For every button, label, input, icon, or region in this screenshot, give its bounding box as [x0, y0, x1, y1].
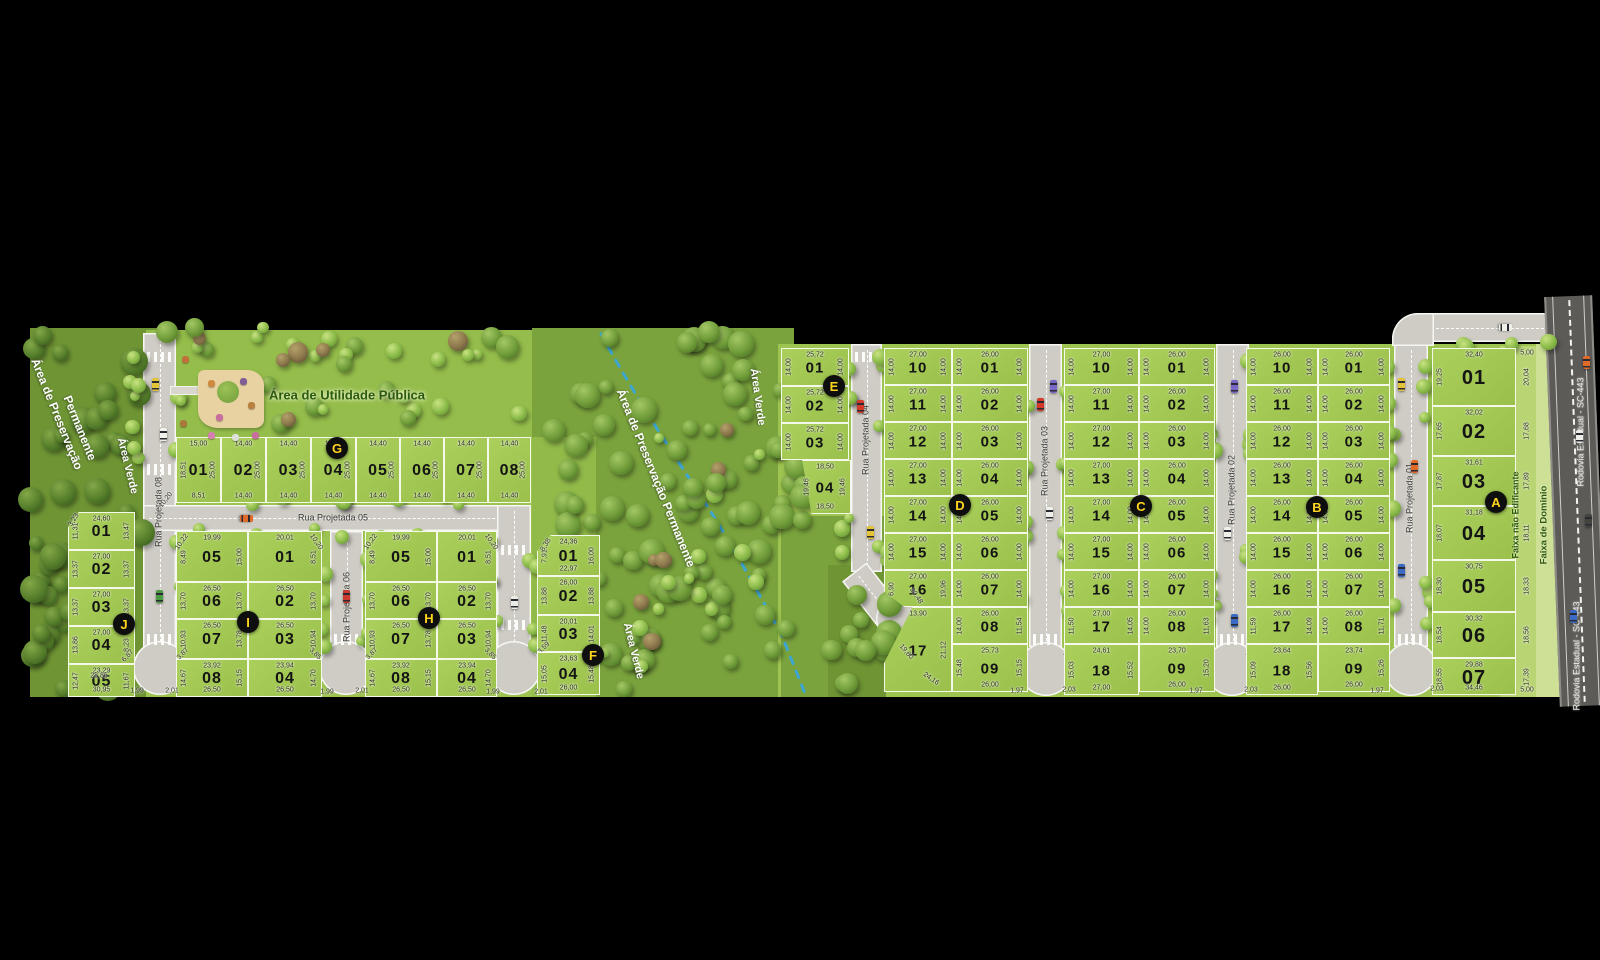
- lot-dimension: 11,67: [124, 672, 131, 689]
- lot-dimension: 14,00: [838, 433, 845, 451]
- tree: [131, 378, 146, 393]
- lot-dimension: 26,00: [560, 580, 578, 587]
- lot-dimension: 15,56: [1307, 661, 1314, 679]
- lot-dimension: 17,87: [1437, 472, 1444, 490]
- lot-dimension: 1,99: [486, 689, 500, 696]
- lot-dimension: 15,48: [957, 659, 964, 677]
- tree: [706, 473, 726, 493]
- lot-dimension: 19,46: [804, 478, 811, 496]
- lot-dimension: 2,03: [1062, 687, 1076, 694]
- car: [1583, 356, 1590, 369]
- lot-dimension: 14,00: [1204, 395, 1211, 413]
- lot-dimension: 26,50: [276, 623, 294, 630]
- tree: [575, 383, 599, 407]
- lot-dimension: 11,50: [1069, 617, 1076, 634]
- lot-dimension: 14,00: [1069, 580, 1076, 598]
- crosswalk: [1398, 634, 1424, 645]
- block-badge-A: A: [1485, 491, 1507, 513]
- lot-dimension: 14,00: [957, 432, 964, 450]
- lot-dimension: 15,00: [237, 548, 244, 566]
- lot-dimension: 26,00: [1168, 537, 1186, 544]
- lot-dimension: 27,00: [909, 352, 927, 359]
- lot-dimension: 14,00: [1069, 395, 1076, 413]
- lot-number-B-17: 17: [1273, 619, 1292, 634]
- lot-number-G-08: 08: [500, 463, 520, 479]
- car: [1398, 564, 1405, 577]
- lot-dimension: 17,65: [1437, 422, 1444, 440]
- lot-dimension: 14,00: [786, 396, 793, 414]
- tree: [754, 449, 765, 460]
- lot-number-I-06: 06: [202, 594, 222, 610]
- lot-dimension: 26,00: [1345, 352, 1363, 359]
- lot-number-C-09: 09: [1168, 662, 1187, 677]
- lot-dimension: 14,00: [1379, 506, 1386, 524]
- car: [1398, 378, 1405, 391]
- lot-number-H-06: 06: [391, 594, 411, 610]
- lot-dimension: 14,00: [1144, 469, 1151, 487]
- tree: [835, 545, 850, 560]
- lot-dimension: 14,00: [786, 433, 793, 451]
- lot-number-J-03: 03: [92, 600, 112, 616]
- lot-dimension: 26,00: [1273, 389, 1291, 396]
- lot-number-B-08: 08: [1345, 619, 1364, 634]
- lot-dimension: 25,00: [433, 461, 440, 479]
- lot-number-C-08: 08: [1168, 619, 1187, 634]
- tree: [643, 633, 661, 651]
- lot-dimension: 26,00: [1168, 611, 1186, 618]
- lot-dimension: 13,90: [909, 611, 927, 618]
- label-rua-projetada-06: Rua Projetada 06: [343, 572, 352, 642]
- tree: [821, 640, 842, 661]
- lot-dimension: 14,00: [1323, 358, 1330, 376]
- car: [511, 596, 518, 609]
- lot-number-C-01: 01: [1168, 360, 1187, 375]
- lot-number-B-16: 16: [1273, 582, 1292, 597]
- tree: [125, 420, 139, 434]
- lot-dimension: 26,00: [1345, 574, 1363, 581]
- lot-dimension: 14,67: [370, 669, 377, 687]
- lot-dimension: 14,00: [1251, 506, 1258, 524]
- lot-dimension: 25,72: [806, 352, 824, 359]
- lot-dimension: 19,46: [840, 478, 847, 496]
- lot-dimension: 14,00: [838, 396, 845, 414]
- lot-dimension: 26,50: [392, 586, 410, 593]
- lot-dimension: 26,00: [981, 426, 999, 433]
- lot-number-G-01: 01: [189, 463, 209, 479]
- tree: [677, 332, 697, 352]
- lot-number-D-06: 06: [981, 545, 1000, 560]
- lot-number-C-11: 11: [1093, 397, 1111, 412]
- lot-dimension: 14,00: [1323, 432, 1330, 450]
- lot-dimension: 26,50: [203, 586, 221, 593]
- lot-dimension: 26,00: [1168, 389, 1186, 396]
- lot-number-A-04: 04: [1462, 524, 1486, 544]
- lot-dimension: 14,00: [1069, 506, 1076, 524]
- lot-dimension: 14,00: [957, 580, 964, 598]
- lot-dimension: 24,36: [560, 539, 578, 546]
- lot-number-I-03: 03: [275, 632, 295, 648]
- lot-dimension: 14,00: [1069, 543, 1076, 561]
- block-badge-B: B: [1306, 496, 1328, 518]
- lot-dimension: 26,00: [981, 389, 999, 396]
- lot-dimension: 26,50: [458, 586, 476, 593]
- lot-dimension: 13,70: [370, 592, 377, 610]
- car: [1231, 380, 1238, 393]
- lot-dimension: 26,50: [458, 687, 476, 694]
- label-faixa-dominio: Faixa de Dominio: [1539, 486, 1549, 565]
- lot-dimension: 14,00: [1128, 395, 1135, 413]
- label-area-utilidade: Área de Utilidade Pública: [269, 389, 425, 402]
- lot-dimension: 16,00: [589, 547, 596, 565]
- lot-dimension: 27,00: [93, 554, 111, 561]
- lot-dimension: 20,01: [276, 535, 294, 542]
- lot-dimension: 14,40: [413, 441, 431, 448]
- car: [152, 378, 159, 391]
- lot-dimension: 2,03: [1244, 687, 1258, 694]
- lot-number-B-03: 03: [1345, 434, 1364, 449]
- lot-dimension: 19,25: [1437, 368, 1444, 386]
- lot-dimension: 27,00: [93, 630, 111, 637]
- lot-number-D-01: 01: [981, 360, 1000, 375]
- lot-dimension: 2,03: [1430, 686, 1444, 693]
- lot-dimension: 8,49: [370, 550, 377, 564]
- lot-number-A-03: 03: [1462, 472, 1486, 492]
- lot-dimension: 27,00: [1093, 426, 1111, 433]
- lot-dimension: 14,00: [957, 358, 964, 376]
- lot-number-H-02: 02: [457, 594, 477, 610]
- car: [1037, 398, 1044, 411]
- lot-dimension: 26,50: [458, 623, 476, 630]
- lot-dimension: 25,72: [806, 427, 824, 434]
- lot-number-C-14: 14: [1092, 508, 1111, 523]
- tree: [616, 681, 632, 697]
- lot-number-F-03: 03: [559, 627, 579, 643]
- lot-number-B-01: 01: [1345, 360, 1364, 375]
- lot-dimension: 25,00: [389, 461, 396, 479]
- lot-number-C-06: 06: [1168, 545, 1187, 560]
- lot-dimension: 27,00: [1093, 352, 1111, 359]
- lot-number-B-11: 11: [1273, 397, 1291, 412]
- lot-dimension: 23,70: [1168, 648, 1186, 655]
- lot-dimension: 27,00: [1093, 389, 1111, 396]
- lot-dimension: 14,00: [957, 469, 964, 487]
- lot-dimension: 26,00: [981, 574, 999, 581]
- lot-dimension: 17,68: [1524, 422, 1531, 440]
- lot-dimension: 1,99: [320, 689, 334, 696]
- lot-dimension: 1,97: [1370, 688, 1384, 695]
- lot-dimension: 26,00: [1345, 682, 1363, 689]
- tree: [33, 326, 52, 345]
- lot-dimension: 14,00: [1128, 580, 1135, 598]
- lot-number-F-04: 04: [559, 667, 579, 683]
- tree: [601, 329, 618, 346]
- lot-number-D-14: 14: [909, 508, 928, 523]
- lot-dimension: 26,00: [981, 682, 999, 689]
- playground-item: [216, 414, 223, 421]
- lot-dimension: 14,00: [889, 358, 896, 376]
- lot-dimension: 28,86: [90, 673, 108, 680]
- lot-number-J-02: 02: [92, 562, 112, 578]
- lot-dimension: 20,01: [458, 535, 476, 542]
- lot-dimension: 26,00: [1168, 682, 1186, 689]
- lot-dimension: 26,00: [560, 685, 578, 692]
- playground-item: [208, 432, 215, 439]
- lot-dimension: 14,00: [1017, 580, 1024, 598]
- lot-dimension: 26,00: [1168, 500, 1186, 507]
- lot-number-C-12: 12: [1092, 434, 1111, 449]
- lot-dimension: 26,50: [203, 623, 221, 630]
- lot-dimension: 24,61: [1093, 648, 1111, 655]
- lot-dimension: 13,70: [237, 592, 244, 610]
- crosswalk: [1220, 634, 1245, 645]
- lot-number-H-01: 01: [457, 550, 477, 566]
- tree: [558, 459, 578, 479]
- tree: [1416, 379, 1431, 394]
- tree: [448, 331, 468, 351]
- lot-dimension: 26,00: [1168, 352, 1186, 359]
- lot-dimension: 14,40: [413, 493, 431, 500]
- lot-dimension: 15,05: [542, 665, 549, 683]
- lot-number-F-02: 02: [559, 589, 579, 605]
- car: [1570, 610, 1577, 623]
- lot-number-A-06: 06: [1462, 626, 1486, 646]
- lot-dimension: 27,00: [1093, 685, 1111, 692]
- lot-number-C-04: 04: [1168, 471, 1187, 486]
- tree: [764, 641, 781, 658]
- lot-dimension: 14,00: [1069, 432, 1076, 450]
- label-faixa-nao-edificante: Faixa não Edificante: [1512, 471, 1521, 558]
- lot-dimension: 2,01: [355, 688, 369, 695]
- lot-dimension: 8,51: [311, 550, 318, 564]
- lot-dimension: 26,00: [1273, 537, 1291, 544]
- car: [1050, 380, 1057, 393]
- lot-dimension: 14,00: [1379, 358, 1386, 376]
- lot-dimension: 14,40: [457, 493, 475, 500]
- playground-item: [252, 432, 259, 439]
- car: [1411, 460, 1418, 473]
- lot-dimension: 19,99: [392, 535, 410, 542]
- tree: [40, 543, 66, 569]
- lot-dimension: 29,88: [1465, 662, 1483, 669]
- lot-dimension: 32,02: [1465, 410, 1483, 417]
- tree: [386, 343, 402, 359]
- lot-dimension: 10,93: [370, 630, 377, 648]
- lot-dimension: 14,00: [1323, 617, 1330, 635]
- lot-dimension: 23,92: [392, 663, 410, 670]
- lot-number-B-12: 12: [1273, 434, 1292, 449]
- lot-dimension: 14,00: [1017, 506, 1024, 524]
- lot-dimension: 14,40: [235, 441, 253, 448]
- lot-dimension: 17,89: [1524, 472, 1531, 490]
- crosswalk: [147, 352, 172, 362]
- lot-number-H-03: 03: [457, 632, 477, 648]
- lot-dimension: 14,00: [941, 469, 948, 487]
- lot-dimension: 13,88: [542, 587, 549, 605]
- access-road-top-centerline: [1426, 328, 1564, 329]
- tree: [52, 344, 69, 361]
- lot-dimension: 22,97: [560, 566, 578, 573]
- lot-dimension: 15,00: [190, 441, 208, 448]
- lot-number-E-02: 02: [806, 398, 825, 413]
- tree: [683, 478, 702, 497]
- lot-dimension: 23,63: [560, 656, 578, 663]
- lot-number-B-10: 10: [1273, 360, 1292, 375]
- lot-dimension: 14,67: [181, 669, 188, 687]
- lot-number-E-01: 01: [806, 361, 825, 376]
- lot-dimension: 26,00: [1345, 463, 1363, 470]
- lot-dimension: 14,00: [1307, 580, 1314, 598]
- lot-dimension: 14,70: [486, 669, 493, 687]
- lot-dimension: 14,00: [1307, 469, 1314, 487]
- lot-dimension: 27,00: [909, 389, 927, 396]
- lot-dimension: 23,92: [203, 663, 221, 670]
- lot-dimension: 14,40: [501, 441, 519, 448]
- playground-item: [240, 378, 247, 385]
- lot-dimension: 14,00: [1128, 469, 1135, 487]
- lot-dimension: 15,03: [1069, 661, 1076, 679]
- lot-dimension: 31,61: [1465, 460, 1483, 467]
- lot-dimension: 14,00: [1144, 395, 1151, 413]
- lot-dimension: 26,00: [1345, 537, 1363, 544]
- tree: [176, 395, 186, 405]
- tree: [853, 612, 869, 628]
- lot-number-A-05: 05: [1462, 577, 1486, 597]
- lot-dimension: 14,00: [1251, 543, 1258, 561]
- lot-dimension: 14,70: [311, 669, 318, 687]
- lot-dimension: 14,00: [957, 395, 964, 413]
- tree: [156, 321, 178, 343]
- tree: [400, 410, 415, 425]
- lot-dimension: 18,33: [1524, 577, 1531, 595]
- tree: [837, 673, 858, 694]
- lot-number-E-04: 04: [816, 481, 835, 496]
- lot-dimension: 14,00: [1379, 469, 1386, 487]
- lot-number-B-09: 09: [1345, 662, 1364, 677]
- lot-dimension: 15,26: [1379, 659, 1386, 677]
- tree: [593, 414, 615, 436]
- lot-number-B-07: 07: [1345, 582, 1364, 597]
- lot-dimension: 25,00: [520, 461, 527, 479]
- lot-dimension: 13,78: [426, 630, 433, 648]
- lot-dimension: 26,00: [1273, 426, 1291, 433]
- lot-number-I-08: 08: [202, 671, 222, 687]
- car: [867, 526, 874, 539]
- lot-dimension: 14,01: [589, 625, 596, 643]
- lot-number-B-14: 14: [1273, 508, 1292, 523]
- lot-dimension: 10,94: [311, 630, 318, 648]
- lot-number-D-07: 07: [981, 582, 1000, 597]
- tree: [653, 603, 664, 614]
- lot-dimension: 14,05: [1128, 617, 1135, 635]
- block-badge-E: E: [823, 375, 845, 397]
- tree: [626, 504, 649, 527]
- lot-dimension: 1,97: [1010, 688, 1024, 695]
- lot-dimension: 18,51: [181, 461, 188, 479]
- lot-dimension: 26,00: [981, 611, 999, 618]
- crosswalk: [147, 464, 172, 475]
- lot-dimension: 14,00: [1251, 580, 1258, 598]
- block-badge-H: H: [418, 607, 440, 629]
- lot-dimension: 14,00: [1379, 543, 1386, 561]
- lot-number-B-06: 06: [1345, 545, 1364, 560]
- tree: [23, 640, 47, 664]
- lot-dimension: 18,55: [1437, 668, 1444, 686]
- lot-dimension: 14,00: [1251, 358, 1258, 376]
- lot-dimension: 13,86: [73, 636, 80, 654]
- lot-number-D-11: 11: [909, 397, 927, 412]
- tree: [661, 575, 676, 590]
- lot-dimension: 14,00: [889, 432, 896, 450]
- car: [343, 590, 350, 603]
- tree: [1419, 576, 1432, 589]
- lot-number-I-04: 04: [275, 671, 295, 687]
- lot-dimension: 8,51: [192, 493, 206, 500]
- lot-dimension: 14,00: [1017, 469, 1024, 487]
- label-rua-projetada-04: Rua Projetada 04: [862, 405, 871, 475]
- lot-dimension: 14,00: [786, 358, 793, 376]
- lot-number-H-04: 04: [457, 671, 477, 687]
- lot-number-D-02: 02: [981, 397, 1000, 412]
- car: [857, 400, 864, 413]
- lot-number-C-07: 07: [1168, 582, 1187, 597]
- lot-dimension: 20,01: [560, 619, 578, 626]
- lot-dimension: 6,90: [889, 582, 896, 596]
- lot-number-B-05: 05: [1345, 508, 1364, 523]
- lot-number-B-02: 02: [1345, 397, 1364, 412]
- playground-item: [248, 402, 255, 409]
- lot-dimension: 26,50: [276, 687, 294, 694]
- tree: [257, 322, 268, 333]
- lot-dimension: 11,48: [542, 625, 549, 642]
- lot-dimension: 11,71: [1379, 617, 1386, 634]
- lot-dimension: 14,00: [941, 506, 948, 524]
- lot-dimension: 30,95: [93, 687, 111, 694]
- lot-dimension: 18,56: [1524, 626, 1531, 644]
- car: [156, 590, 163, 603]
- tree: [511, 406, 527, 422]
- lot-number-G-07: 07: [456, 463, 476, 479]
- lot-dimension: 18,50: [816, 464, 834, 471]
- lot-number-B-04: 04: [1345, 471, 1364, 486]
- lot-dimension: 26,00: [1273, 574, 1291, 581]
- lot-dimension: 26,00: [1345, 500, 1363, 507]
- car: [1224, 527, 1231, 540]
- lot-dimension: 26,00: [1345, 389, 1363, 396]
- block-badge-G: G: [326, 437, 348, 459]
- lot-dimension: 14,00: [1251, 432, 1258, 450]
- lot-dimension: 5,00: [1520, 687, 1534, 694]
- car: [240, 515, 253, 522]
- lot-dimension: 18,50: [816, 504, 834, 511]
- lot-dimension: 14,09: [1307, 617, 1314, 635]
- lot-dimension: 14,00: [1307, 543, 1314, 561]
- tree: [755, 605, 774, 624]
- tree: [566, 496, 584, 514]
- lot-dimension: 25,00: [300, 461, 307, 479]
- lot-dimension: 14,00: [1307, 358, 1314, 376]
- lot-number-H-05: 05: [391, 550, 411, 566]
- lot-number-I-01: 01: [275, 550, 295, 566]
- lot-dimension: 27,00: [1093, 574, 1111, 581]
- lot-dimension: 23,74: [1345, 648, 1363, 655]
- crosswalk: [501, 620, 527, 630]
- tree: [288, 342, 308, 362]
- lot-dimension: 15,20: [1204, 659, 1211, 677]
- lot-dimension: 14,00: [1204, 580, 1211, 598]
- lot-number-C-16: 16: [1092, 582, 1111, 597]
- lot-dimension: 34,46: [1465, 685, 1483, 692]
- lot-number-G-02: 02: [234, 463, 254, 479]
